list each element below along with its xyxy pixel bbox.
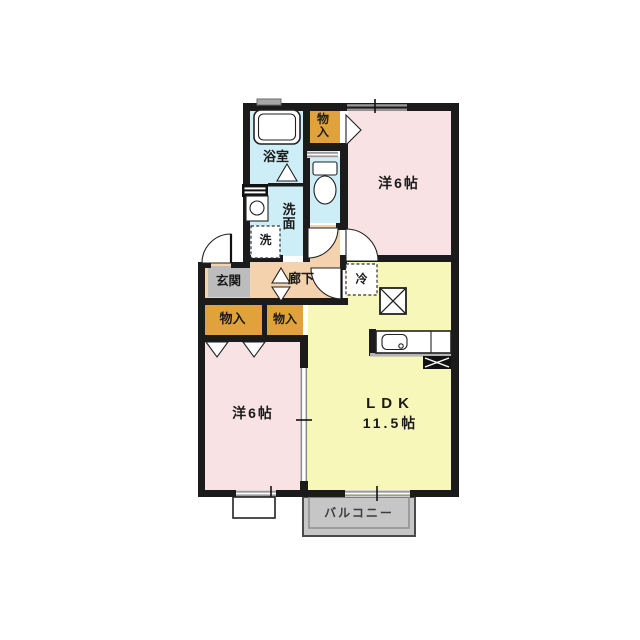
floor-plan-drawing <box>0 0 640 640</box>
partition-sliding-door-bar <box>306 368 308 481</box>
toilet-window-bar <box>307 152 338 154</box>
storage-right-label: 物入 <box>267 313 303 326</box>
wall-partition-top <box>300 342 308 368</box>
vent-slat <box>245 191 266 193</box>
washer-label: 洗 <box>251 234 280 247</box>
vent-body <box>242 184 268 197</box>
wall-bath-washroom <box>268 183 303 187</box>
washbasin-bowl <box>250 201 264 215</box>
bathtub-inner <box>259 114 296 140</box>
entrance-door-swing <box>202 234 231 263</box>
vent-slat <box>245 187 266 189</box>
fridge-label: 冷 <box>346 273 377 286</box>
bedroom-sw-window-bar <box>236 494 276 496</box>
wall-toilet-bedroom <box>340 145 348 230</box>
ldk-label-line1: LDK <box>348 396 433 413</box>
partition-sliding-door-bar <box>301 368 303 481</box>
genkan-label: 玄関 <box>206 274 251 288</box>
bedroom-sw-label: 洋6帖 <box>213 406 293 422</box>
bedroom-sw-bay-step <box>233 497 275 518</box>
kitchen-counter <box>370 331 451 357</box>
wall-storage-top-bottom <box>303 143 348 151</box>
wall-kitchen-stub <box>369 329 376 356</box>
balcony-label: バルコニー <box>309 507 409 520</box>
louver-vent <box>242 184 268 197</box>
toilet-bowl <box>314 176 336 204</box>
floor-plan-page: 浴室 物入 洋6帖 洗面 洗 玄関 廊下 冷 物入 物入 洋6帖 LDK 11.… <box>0 0 640 640</box>
storage-left-label: 物入 <box>203 312 262 327</box>
pipe-space <box>423 356 451 369</box>
wall-lower-left <box>198 262 205 497</box>
hallway-label: 廊下 <box>276 272 326 287</box>
wall-partition-bottom <box>300 481 308 490</box>
wall-entry-right <box>231 262 250 268</box>
bath-label: 浴室 <box>253 150 299 165</box>
bedroom-ne-window-bar <box>347 109 407 111</box>
toilet-window-bar <box>307 155 338 157</box>
wall-right <box>451 103 459 497</box>
bath-top-window <box>257 99 281 105</box>
wall-hall-bottom <box>198 298 348 305</box>
washroom-label: 洗面 <box>281 203 297 230</box>
ldk-label-line2: 11.5帖 <box>343 416 438 432</box>
bedroom-sw-window-bar <box>236 491 276 493</box>
column-box <box>380 288 406 314</box>
sink-drain <box>399 344 403 348</box>
storage-top-label: 物入 <box>315 113 331 138</box>
bedroom-ne-label: 洋6帖 <box>359 176 439 192</box>
bedroom-ne-window-bar <box>347 104 407 106</box>
wall-storage-bottom <box>198 335 308 342</box>
toilet-tank <box>313 162 337 175</box>
